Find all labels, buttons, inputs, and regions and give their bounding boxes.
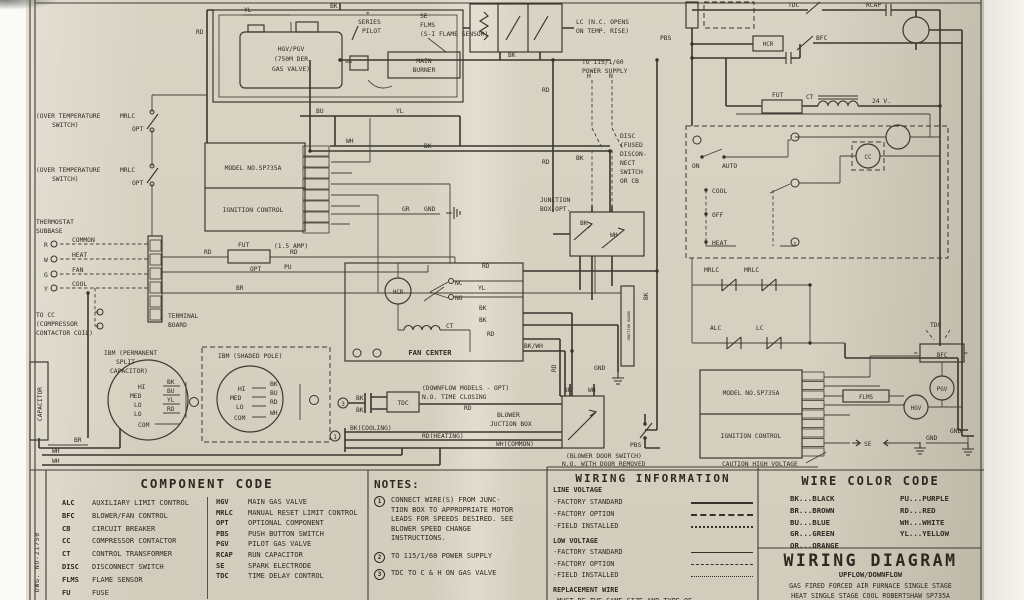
tdc-right-label: TDC <box>930 322 942 329</box>
wire-wh-common: WH(COMMON) <box>496 441 534 448</box>
label-bk3: BK <box>508 52 516 59</box>
hgv-label: HGV <box>911 406 922 412</box>
blower-jbox-1: BLOWER <box>497 412 520 419</box>
blower-jbox-2: JUCTION BOX <box>490 421 532 428</box>
diagram-line2: HEAT SINGLE STAGE COOL ROBERTSHAW SP735A <box>760 591 981 600</box>
label-gnd3: GND <box>926 435 938 442</box>
replacement-wire-label: REPLACEMENT WIRE <box>553 584 753 596</box>
fan-center-label: FAN CENTER <box>408 348 452 357</box>
m2-rd: RD <box>270 399 278 406</box>
label-rd7: RD <box>551 364 558 372</box>
blower-lead-wh: WH <box>588 387 596 394</box>
main-burner-1: MAIN <box>416 58 431 65</box>
tdc-lead-bk2: BK <box>356 407 364 414</box>
label-bk4: BK <box>479 305 487 312</box>
label-br1: BR <box>74 437 82 444</box>
note-3-text: TDC TO C & H ON GAS VALVE <box>391 569 515 580</box>
drawing-number: DWG. NO-21750 <box>34 532 41 592</box>
shaded-pole-label: IBM (SHADED POLE) <box>218 353 282 360</box>
label-24v: 24 V. <box>872 98 891 105</box>
fuse-label: FUT <box>238 242 250 249</box>
note-3: 3 TDC TO C & H ON GAS VALVE <box>374 569 542 580</box>
component-code-col2: HGVMAIN GAS VALVE MRLCMANUAL RESET LIMIT… <box>208 497 366 599</box>
m1-com: COM <box>138 422 150 429</box>
psc-motor-1: IBM (PERMANENT <box>104 350 157 357</box>
pilot-star: * <box>366 11 370 18</box>
wire-color-code-section: WIRE COLOR CODE BK...BLACKBR...BROWN BU.… <box>760 474 981 552</box>
label-rd4: RD <box>290 249 298 256</box>
label-yl3: YL <box>478 285 486 292</box>
note-ref-1: 1 <box>333 434 337 441</box>
gas-valve-name: HGV/PGV <box>278 46 305 53</box>
tdc-lead-bk1: BK <box>356 395 364 402</box>
tstat-on: ON <box>692 163 700 170</box>
replacement-wire-text: -MUST BE THE SAME SIZE AND TYPE OF <box>553 596 753 600</box>
disc-6: OR CB <box>620 178 639 185</box>
label-bk2: BK <box>424 143 432 150</box>
fut-right-label: FUT <box>772 92 784 99</box>
caution-label: CAUTION HIGH VOLTAGE <box>722 461 798 468</box>
m1-bk: BK <box>167 379 175 386</box>
wire-rd-heating: RD(HEATING) <box>422 433 464 440</box>
door-switch-1: (BLOWER DOOR SWITCH) <box>566 453 642 460</box>
tdc-top-label: TDC <box>788 2 800 9</box>
terminal-w: W <box>44 257 48 264</box>
ignition-control-1: IGNITION CONTROL <box>223 207 284 214</box>
capacitor-label: CAPACITOR <box>37 387 44 421</box>
ignition-model-1: MODEL NO.SP735A <box>225 165 282 172</box>
m1-rd: RD <box>167 406 175 413</box>
label-rd2: RD <box>542 159 550 166</box>
label-gr: GR <box>402 206 410 213</box>
pgv-label: PGV <box>937 387 948 393</box>
contact-no: NO <box>455 295 463 302</box>
junction-board-label: JUNCTION BOARD <box>627 311 631 341</box>
flms-right-label: FLMS <box>859 395 873 401</box>
note-ref-3: 3 <box>341 401 345 408</box>
lc-switch-label: LC <box>756 325 764 332</box>
title-block-section: WIRING DIAGRAM UPFLOW/DOWNFLOW GAS FIRED… <box>760 551 981 600</box>
spark-electrode-label: SE <box>420 13 428 20</box>
label-rd3: RD <box>204 249 212 256</box>
junction-box-2: BOX-OPT. <box>540 206 570 213</box>
label-bk: BK <box>330 3 338 10</box>
disc-1: DISC <box>620 133 635 140</box>
thermostat-2: SUBBASE <box>36 228 63 235</box>
diagram-title: WIRING DIAGRAM <box>760 551 981 570</box>
note-1: 1 CONNECT WIRE(S) FROM JUNC- TION BOX TO… <box>374 496 542 544</box>
tstat-heat: HEAT <box>712 240 727 247</box>
m2-bk: BK <box>270 381 278 388</box>
stat-heat: HEAT <box>72 252 87 259</box>
pbs-bottom-label: PBS <box>630 442 642 449</box>
terminal-g: G <box>44 272 48 279</box>
diagram-line1: GAS FIRED FORCED AIR FURNACE SINGLE STAG… <box>760 581 981 591</box>
note-1-text: CONNECT WIRE(S) FROM JUNC- TION BOX TO A… <box>391 496 515 544</box>
label-pu: PU <box>284 264 292 271</box>
label-yl: YL <box>244 7 252 14</box>
limit-control-2: ON TEMP. RISE) <box>576 28 629 35</box>
component-code-title: COMPONENT CODE <box>48 476 366 491</box>
wire-color-col2: PU...PURPLERD...RED WH...WHITEYL...YELLO… <box>900 493 949 552</box>
cc-contactor-label: CC <box>865 155 872 161</box>
m2-bu: BU <box>270 390 278 397</box>
fuse-opt: OPT <box>250 266 262 273</box>
psc-motor-3: CAPACITOR) <box>110 368 148 375</box>
label-neutral: N <box>609 73 613 80</box>
mrlc-right-2: MRLC <box>744 267 759 274</box>
note-2-number: 2 <box>374 552 385 563</box>
note-2-text: TO 115/1/60 POWER SUPPLY <box>391 552 515 563</box>
label-rd8: RD <box>464 405 472 412</box>
label-bk5: BK <box>479 317 487 324</box>
tstat-cool: COOL <box>712 188 727 195</box>
wire-color-col1: BK...BLACKBR...BROWN BU...BLUEGR...GREEN… <box>760 493 900 552</box>
m1-bu: BU <box>167 388 175 395</box>
m1-yl: YL <box>167 397 175 404</box>
over-temp-1b: SWITCH) <box>52 122 79 129</box>
label-gnd1: GND <box>424 206 436 213</box>
over-temp-2b: SWITCH) <box>52 176 79 183</box>
ct-label: CT <box>446 323 454 330</box>
schematic-labels: YL BK RD HGV/PGV (750M DER GAS VALVE) * … <box>36 2 962 468</box>
mrlc-label-1: MRLC <box>120 113 135 120</box>
line-sample-factory-option <box>691 514 753 516</box>
stat-common: COMMON <box>72 237 95 244</box>
thermostat-1: THERMOSTAT <box>36 219 74 226</box>
flame-sensor-label: (S-I FLAME SENSOR) <box>420 31 488 38</box>
notes-title: NOTES: <box>374 478 542 491</box>
mrlc-right-1: MRLC <box>704 267 719 274</box>
wiring-information-title: WIRING INFORMATION <box>553 472 753 485</box>
disc-2: (FUSED <box>620 142 643 149</box>
m2-wh: WH <box>270 410 278 417</box>
disc-4: NECT <box>620 160 635 167</box>
se-right-label: SE <box>864 441 872 448</box>
tdc-box-label: TDC <box>397 400 409 407</box>
disc-3: DISCON- <box>620 151 647 158</box>
series-pilot-1: SERIES <box>358 19 381 26</box>
hcr-coil-label: HCR <box>393 290 404 296</box>
line-sample-field-installed <box>691 526 753 528</box>
hcr-relay-label: HCR <box>763 42 774 48</box>
line-voltage-label: LINE VOLTAGE <box>553 485 753 497</box>
label-rd5: RD <box>482 263 490 270</box>
low-sample-factory-option <box>691 564 753 565</box>
pbs-top-label: PBS <box>660 35 672 42</box>
note-2: 2 TO 115/1/60 POWER SUPPLY <box>374 552 542 563</box>
alc-label: ALC <box>710 325 722 332</box>
m2-lo: LO <box>236 404 244 411</box>
rcap-label: RCAP <box>866 2 881 9</box>
downflow-1: (DOWNFLOW MODELS - OPT) <box>422 385 509 392</box>
bfc-box-label: BFC <box>937 353 948 359</box>
label-bkv: BK <box>576 155 584 162</box>
over-temp-2a: (OVER TEMPERATURE <box>36 167 101 174</box>
disc-5: SWITCH <box>620 169 643 176</box>
label-rd1: RD <box>542 87 550 94</box>
bfc-contact-label: BFC <box>816 35 828 42</box>
opt-label-2: OPT <box>132 180 144 187</box>
stat-fan: FAN <box>72 267 84 274</box>
terminal-board-1: TERMINAL <box>168 313 199 320</box>
ignition-control-2: IGNITION CONTROL <box>721 433 782 440</box>
terminal-y: Y <box>44 286 48 293</box>
wire-color-code-title: WIRE COLOR CODE <box>760 474 981 488</box>
wires-thin <box>48 15 968 467</box>
gas-valve-line2: (750M DER <box>274 56 308 63</box>
series-pilot-2: PILOT <box>362 28 381 35</box>
to-cc-2: (COMPRESSOR <box>36 321 78 328</box>
to-cc-1: TO CC <box>36 312 55 319</box>
diagram-subtitle: UPFLOW/DOWNFLOW <box>760 570 981 581</box>
label-bk6: BK <box>643 292 650 300</box>
component-code-section: COMPONENT CODE ALCAUXILIARY LIMIT CONTRO… <box>48 476 366 599</box>
ignition-model-2: MODEL NO.SP735A <box>723 390 780 397</box>
door-switch-2: N.O. WITH DOOR REMOVED <box>562 461 646 468</box>
label-wh-b: WH <box>52 458 60 465</box>
label-bu: BU <box>316 108 324 115</box>
m2-com: COM <box>234 415 246 422</box>
contact-nc: NC <box>455 280 463 287</box>
terminal-board-2: BOARD <box>168 322 187 329</box>
label-bkwh: BK/WH <box>524 343 543 350</box>
stat-cool: COOL <box>72 281 87 288</box>
tstat-auto: AUTO <box>722 163 737 170</box>
jbox-wh: WH <box>610 232 618 239</box>
component-code-col1: ALCAUXILIARY LIMIT CONTROL BFCBLOWER/FAN… <box>48 497 208 599</box>
label-wh2: WH <box>346 138 354 145</box>
main-burner-2: BURNER <box>413 67 436 74</box>
wire-bk-cooling: BK(COOLING) <box>350 425 392 432</box>
label-gnd4: GND <box>950 428 962 435</box>
mrlc-label-2: MRLC <box>120 167 135 174</box>
m2-hi: HI <box>238 386 246 393</box>
notes-section: NOTES: 1 CONNECT WIRE(S) FROM JUNC- TION… <box>374 478 542 580</box>
jbox-bk: BK <box>580 220 588 227</box>
opt-label-1: OPT <box>132 126 144 133</box>
blower-lead-bk: BK <box>564 387 572 394</box>
label-hot: H <box>587 73 591 80</box>
limit-control-1: LC (N.C. OPENS <box>576 19 629 26</box>
junction-box-1: JUNCTION <box>540 197 571 204</box>
flame-sensor-abbr: FLMS <box>420 22 435 29</box>
low-sample-field-installed <box>691 576 753 577</box>
to-cc-3: CONTACTOR COIL) <box>36 330 93 337</box>
terminal-r: R <box>44 242 48 249</box>
tstat-off: OFF <box>712 212 724 219</box>
low-voltage-label: LOW VOLTAGE <box>553 535 753 547</box>
wiring-information-section: WIRING INFORMATION LINE VOLTAGE -FACTORY… <box>553 472 753 600</box>
over-temp-1a: (OVER TEMPERATURE <box>36 113 101 120</box>
downflow-2: N.O. TIME CLOSING <box>422 394 487 401</box>
scan-page: YL BK RD HGV/PGV (750M DER GAS VALVE) * … <box>0 0 1024 600</box>
m1-med: MED <box>130 393 142 400</box>
m2-med: MED <box>230 395 242 402</box>
label-wh-a: WH <box>52 448 60 455</box>
psc-motor-2: SPLIT <box>116 359 135 366</box>
power-supply-1: TO 115/1/60 <box>582 59 624 66</box>
ct-right-label: CT <box>806 94 814 101</box>
label-rd6: RD <box>487 331 495 338</box>
low-sample-factory-standard <box>691 552 753 553</box>
note-3-number: 3 <box>374 569 385 580</box>
m1-hi: HI <box>138 384 146 391</box>
label-yl2: YL <box>396 108 404 115</box>
gas-valve-line3: GAS VALVE) <box>272 66 310 73</box>
label-rd: RD <box>196 29 204 36</box>
line-sample-factory-standard <box>691 502 753 504</box>
note-1-number: 1 <box>374 496 385 507</box>
label-br2: BR <box>236 285 244 292</box>
m1-lo1: LO <box>134 402 142 409</box>
label-gnd2: GND <box>594 365 606 372</box>
m1-lo2: LO <box>134 411 142 418</box>
